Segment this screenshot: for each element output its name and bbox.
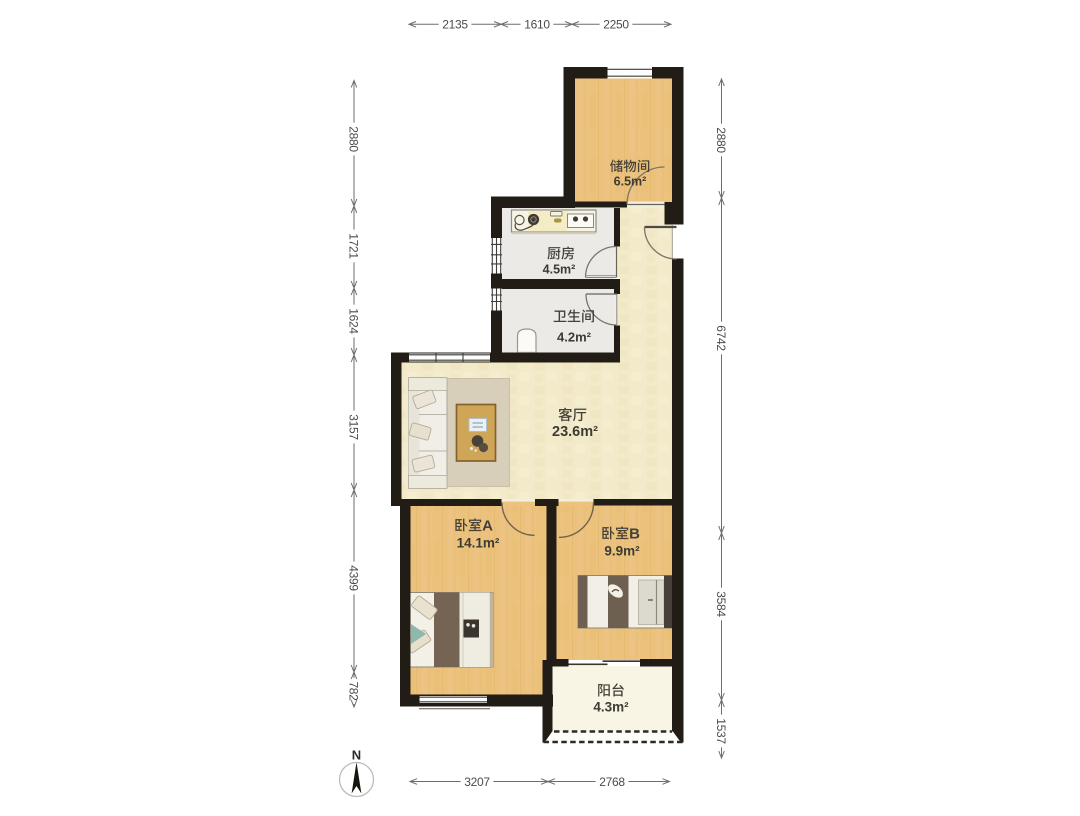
svg-text:2880: 2880 <box>714 127 728 153</box>
svg-text:9.9m²: 9.9m² <box>604 544 640 559</box>
svg-text:1721: 1721 <box>347 233 361 259</box>
svg-text:A: A <box>482 517 493 534</box>
svg-text:1624: 1624 <box>347 308 361 334</box>
svg-text:N: N <box>352 748 361 763</box>
svg-text:782: 782 <box>347 681 361 701</box>
svg-text:2880: 2880 <box>347 126 361 152</box>
svg-text:3584: 3584 <box>714 591 728 617</box>
svg-text:23.6m²: 23.6m² <box>552 424 598 440</box>
svg-text:4.5m²: 4.5m² <box>543 263 576 277</box>
svg-text:4399: 4399 <box>347 565 361 591</box>
svg-text:1537: 1537 <box>714 718 728 744</box>
svg-text:4.2m²: 4.2m² <box>557 330 592 345</box>
svg-text:1610: 1610 <box>524 18 550 32</box>
svg-text:B: B <box>629 525 640 542</box>
svg-text:2135: 2135 <box>442 18 468 32</box>
svg-text:4.3m²: 4.3m² <box>593 700 629 715</box>
svg-text:2768: 2768 <box>599 775 625 789</box>
svg-text:3207: 3207 <box>464 775 490 789</box>
svg-text:2250: 2250 <box>603 18 629 32</box>
svg-text:6742: 6742 <box>714 325 728 351</box>
svg-text:6.5m²: 6.5m² <box>614 175 647 189</box>
svg-text:3157: 3157 <box>347 414 361 440</box>
svg-text:14.1m²: 14.1m² <box>457 536 500 551</box>
